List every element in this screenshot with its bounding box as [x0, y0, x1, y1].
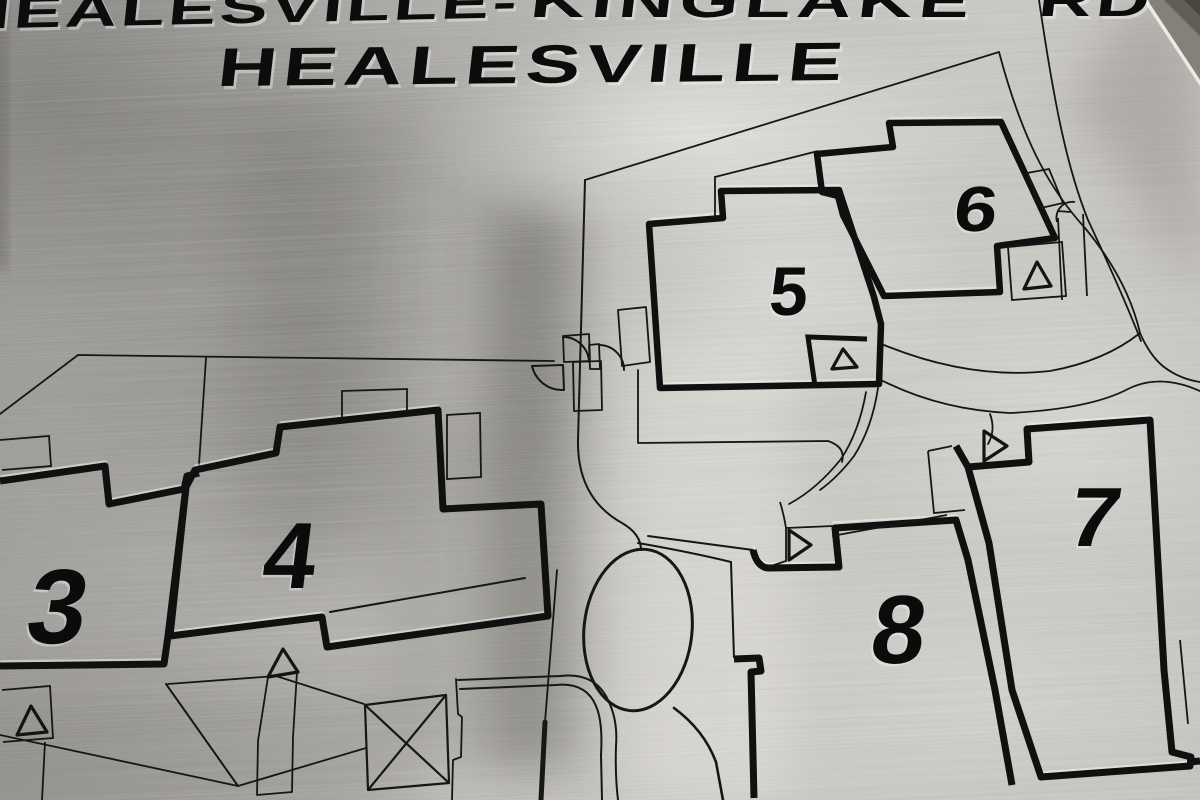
svg-text:RD: RD	[1036, 0, 1157, 26]
svg-text:6: 6	[950, 174, 1001, 246]
svg-text:5: 5	[767, 252, 811, 330]
svg-text:HEALESVILLE: HEALESVILLE	[215, 31, 853, 98]
svg-text:KINGLAKE: KINGLAKE	[528, 0, 979, 27]
